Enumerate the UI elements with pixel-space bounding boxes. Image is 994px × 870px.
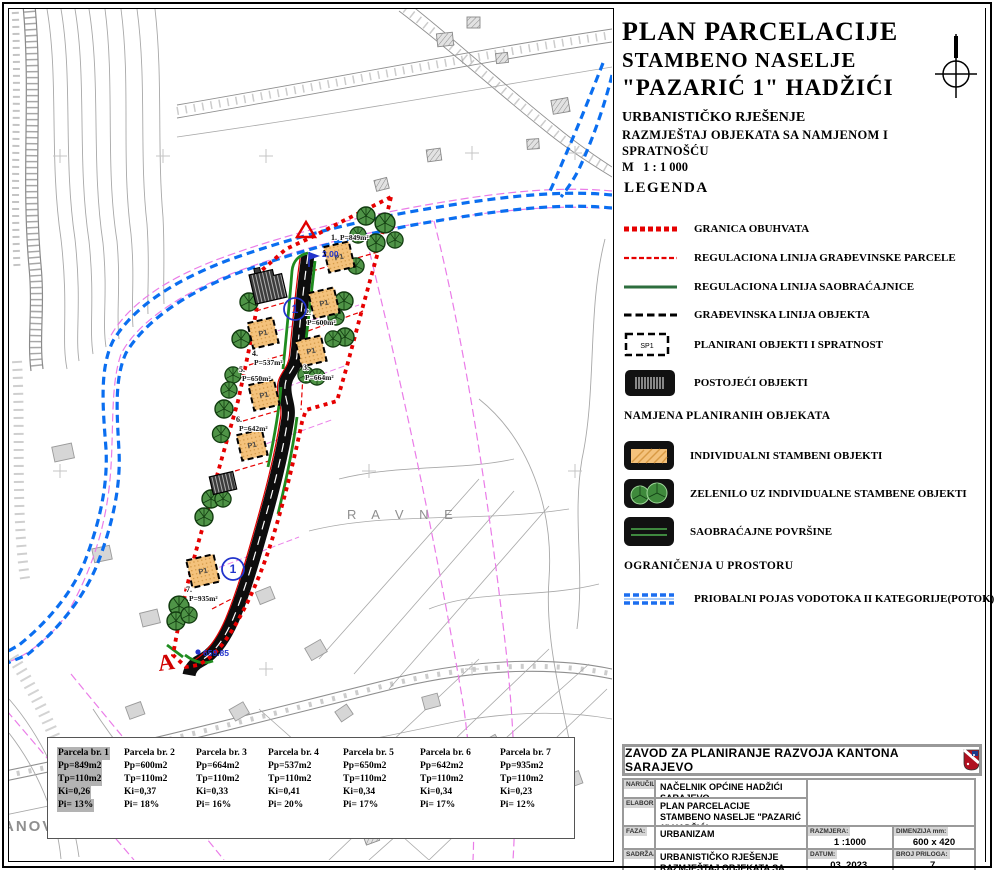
svg-text:3.: 3.: [303, 363, 309, 372]
ogranicenja-item-priobalni: PRIOBALNI POJAS VODOTOKA II KATEGORIJE(P…: [624, 588, 994, 610]
cell-empty: [808, 780, 974, 825]
basemap-gray-layer: [9, 9, 612, 860]
plan-title-line3: "PAZARIĆ 1" HADŽIĆI: [622, 73, 942, 102]
plan-title-line2: STAMBENO NASELJE: [622, 47, 942, 73]
legend-item-granica: GRANICA OBUHVATA: [624, 220, 809, 238]
ogranicenja-heading: OGRANIČENJA U PROSTORU: [624, 560, 793, 572]
legend-item-reg-parcele: REGULACIONA LINIJA GRAĐEVINSKE PARCELE: [624, 249, 956, 267]
svg-text:6.: 6.: [236, 415, 242, 424]
namjena-heading: NAMJENA PLANIRANIH OBJEKATA: [624, 410, 830, 422]
cell-elaborat-label: ELABORAT:: [624, 799, 654, 825]
namjena-item-zelenilo: ZELENILO UZ INDIVIDUALNE STAMBENE OBJEKT…: [624, 479, 967, 508]
greenery-symbol: [624, 479, 674, 508]
red-dashed-line-symbol: [624, 255, 682, 261]
svg-text:P=650m²: P=650m²: [242, 374, 271, 383]
cell-sadrzaj-label: SADRŽAJ:: [624, 850, 654, 870]
cell-dimenzija: DIMENZIJA mm: 600 x 420: [894, 827, 974, 848]
legend-item-planirani-objekti: SP1 PLANIRANI OBJEKTI I SPRATNOST: [624, 332, 883, 358]
building-4: P1: [247, 317, 278, 348]
parcel-info-box: Parcela br. 1 Pp=849m2 Tp=110m2 Ki=0,26 …: [47, 737, 575, 839]
title-block-table: NARUČILAC: NAČELNIK OPĆINE HADŽIĆI SARAJ…: [622, 778, 976, 870]
cell-elaborat: PLAN PARCELACIJE STAMBENO NASELJE "PAZAR…: [656, 799, 806, 825]
road-number-badge-bottom: 1: [222, 558, 244, 580]
sadrzaj-line1: URBANISTIČKO RJEŠENJE: [660, 852, 802, 863]
existing-houses-layer: [52, 17, 583, 845]
svg-text:P=935m²: P=935m²: [189, 594, 218, 603]
svg-text:P=664m²: P=664m²: [305, 373, 334, 382]
coat-of-arms-icon: [963, 749, 979, 771]
red-dotted-line-symbol: [624, 225, 682, 233]
elevation-point: [195, 649, 200, 654]
site-plan-map: P1 P1 P1 P1 P1 P1 P1 1. P=849m² 2. P=600…: [9, 9, 612, 860]
elevation-note: 659.85: [203, 648, 229, 658]
plan-subtitle1: URBANISTIČKO RJEŠENJE: [622, 109, 942, 127]
legend-item-postojeci-objekti: POSTOJEĆI OBJEKTI: [624, 368, 808, 398]
parcel-1-info: Parcela br. 1 Pp=849m2 Tp=110m2 Ki=0,26 …: [57, 747, 110, 812]
cell-faza-label: FAZA:: [624, 827, 654, 848]
grid-crosses: [53, 146, 582, 676]
cell-sadrzaj: URBANISTIČKO RJEŠENJE RAZMJEŠTAJ OBJEKAT…: [656, 850, 806, 870]
svg-text:1.: 1.: [331, 233, 337, 242]
svg-text:1: 1: [230, 562, 237, 576]
namjena-item-saobracajne: SAOBRAĆAJNE POVRŠINE: [624, 517, 832, 546]
road-width-note: 2,00: [322, 249, 339, 259]
svg-text:P=849m²: P=849m²: [340, 233, 369, 242]
sadrzaj-line2: RAZMJEŠTAJ OBJEKATA SA NAMJENOM I SPRATN…: [660, 863, 802, 870]
traffic-surface-symbol: [624, 517, 674, 546]
plan-scale: M 1 : 1 000: [622, 159, 942, 176]
building-5: P1: [248, 379, 279, 410]
legend-heading: LEGENDA: [624, 180, 709, 197]
section-letter-bottom: A: [156, 649, 176, 676]
parcel-3-info: Parcela br. 3Pp=664m2 Tp=110m2Ki=0,33Pi=…: [196, 747, 247, 812]
existing-object-symbol: [624, 368, 682, 398]
building-6: P1: [236, 429, 267, 460]
cell-datum: DATUM: 03. 2023.: [808, 850, 892, 870]
parcel-2-info: Parcela br. 2Pp=600m2 Tp=110m2Ki=0,37Pi=…: [124, 747, 175, 812]
cell-narucilac: NAČELNIK OPĆINE HADŽIĆI SARAJEVO: [656, 780, 806, 797]
parcel-4-info: Parcela br. 4Pp=537m2 Tp=110m2Ki=0,41Pi=…: [268, 747, 319, 812]
building-7: P1: [186, 554, 220, 588]
railway: [15, 9, 43, 371]
cell-narucilac-label: NARUČILAC:: [624, 780, 654, 797]
svg-text:1: 1: [292, 302, 299, 316]
plan-title-line1: PLAN PARCELACIJE: [622, 16, 942, 47]
plan-subtitle2: RAZMJEŠTAJ OBJEKATA SA NAMJENOM I SPRATN…: [622, 127, 942, 159]
stream-buffer-symbol: [624, 590, 682, 608]
parcel-6-info: Parcela br. 6Pp=642m2 Tp=110m2Ki=0,34Pi=…: [420, 747, 471, 812]
namjena-item-stambeni: INDIVIDUALNI STAMBENI OBJEKTI: [624, 441, 882, 470]
institution-bar: ZAVOD ZA PLANIRANJE RAZVOJA KANTONA SARA…: [622, 744, 982, 776]
title-block: PLAN PARCELACIJE STAMBENO NASELJE "PAZAR…: [622, 16, 942, 176]
institution-name: ZAVOD ZA PLANIRANJE RAZVOJA KANTONA SARA…: [625, 746, 955, 774]
map-area: P1 P1 P1 P1 P1 P1 P1 1. P=849m² 2. P=600…: [8, 8, 614, 862]
info-panel: PLAN PARCELACIJE STAMBENO NASELJE "PAZAR…: [614, 8, 986, 862]
plan-sheet: P1 P1 P1 P1 P1 P1 P1 1. P=849m² 2. P=600…: [0, 0, 994, 870]
cell-broj-priloga: BROJ PRILOGA: 7.: [894, 850, 974, 870]
residential-object-symbol: [624, 441, 674, 470]
planned-object-symbol: SP1: [624, 332, 682, 358]
legend-item-gradjevinska-linija: GRAĐEVINSKA LINIJA OBJEKTA: [624, 306, 870, 324]
legend-item-reg-saobracajnice: REGULACIONA LINIJA SAOBRAĆAJNICE: [624, 278, 914, 296]
place-label-ravne: R A V N E: [347, 507, 459, 522]
svg-text:P=537m²: P=537m²: [254, 358, 283, 367]
cell-faza: URBANIZAM: [656, 827, 806, 848]
svg-text:4.: 4.: [252, 349, 258, 358]
parcel-5-info: Parcela br. 5Pp=650m2 Tp=110m2Ki=0,34Pi=…: [343, 747, 394, 812]
black-dashed-line-symbol: [624, 312, 682, 318]
svg-text:SP1: SP1: [640, 343, 653, 350]
svg-text:P=642m²: P=642m²: [239, 424, 268, 433]
parcel-7-info: Parcela br. 7Pp=935m2 Tp=110m2Ki=0,23Pi=…: [500, 747, 551, 812]
svg-text:7.: 7.: [186, 585, 192, 594]
cell-razmjera: RAZMJERA: 1 :1000: [808, 827, 892, 848]
svg-text:5.: 5.: [239, 365, 245, 374]
north-compass-icon: [926, 32, 986, 106]
svg-text:P=600m²: P=600m²: [307, 318, 336, 327]
green-line-symbol: [624, 284, 682, 290]
